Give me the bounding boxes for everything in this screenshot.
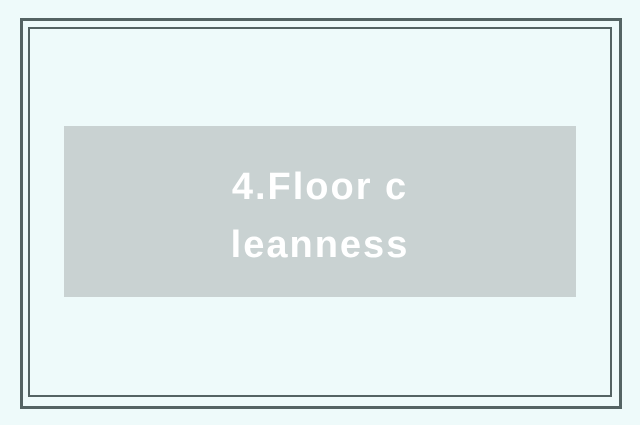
title-text-line-1: 4.Floor c <box>64 158 576 216</box>
slide-background: 4.Floor c leanness <box>0 0 640 425</box>
title-text-line-2: leanness <box>64 216 576 274</box>
title-box: 4.Floor c leanness <box>64 126 576 297</box>
